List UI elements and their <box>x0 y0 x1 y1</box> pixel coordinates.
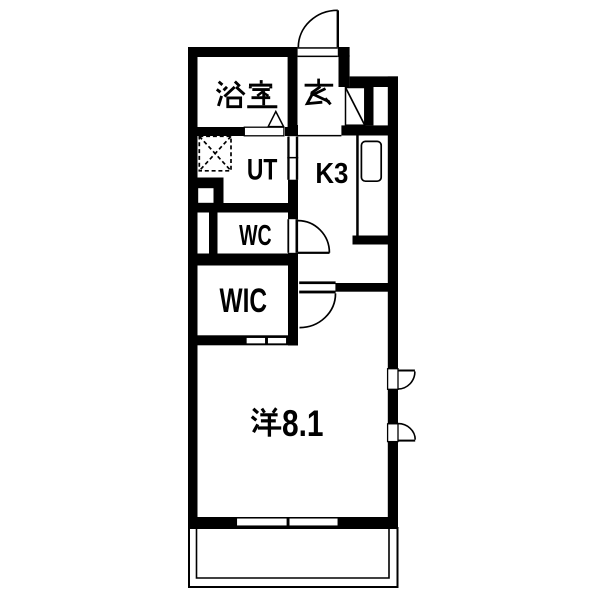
svg-text:WIC: WIC <box>220 282 268 320</box>
svg-text:UT: UT <box>247 154 278 187</box>
svg-text:K3: K3 <box>315 158 348 190</box>
svg-text:8.1: 8.1 <box>282 402 324 444</box>
svg-text:WC: WC <box>239 220 272 252</box>
